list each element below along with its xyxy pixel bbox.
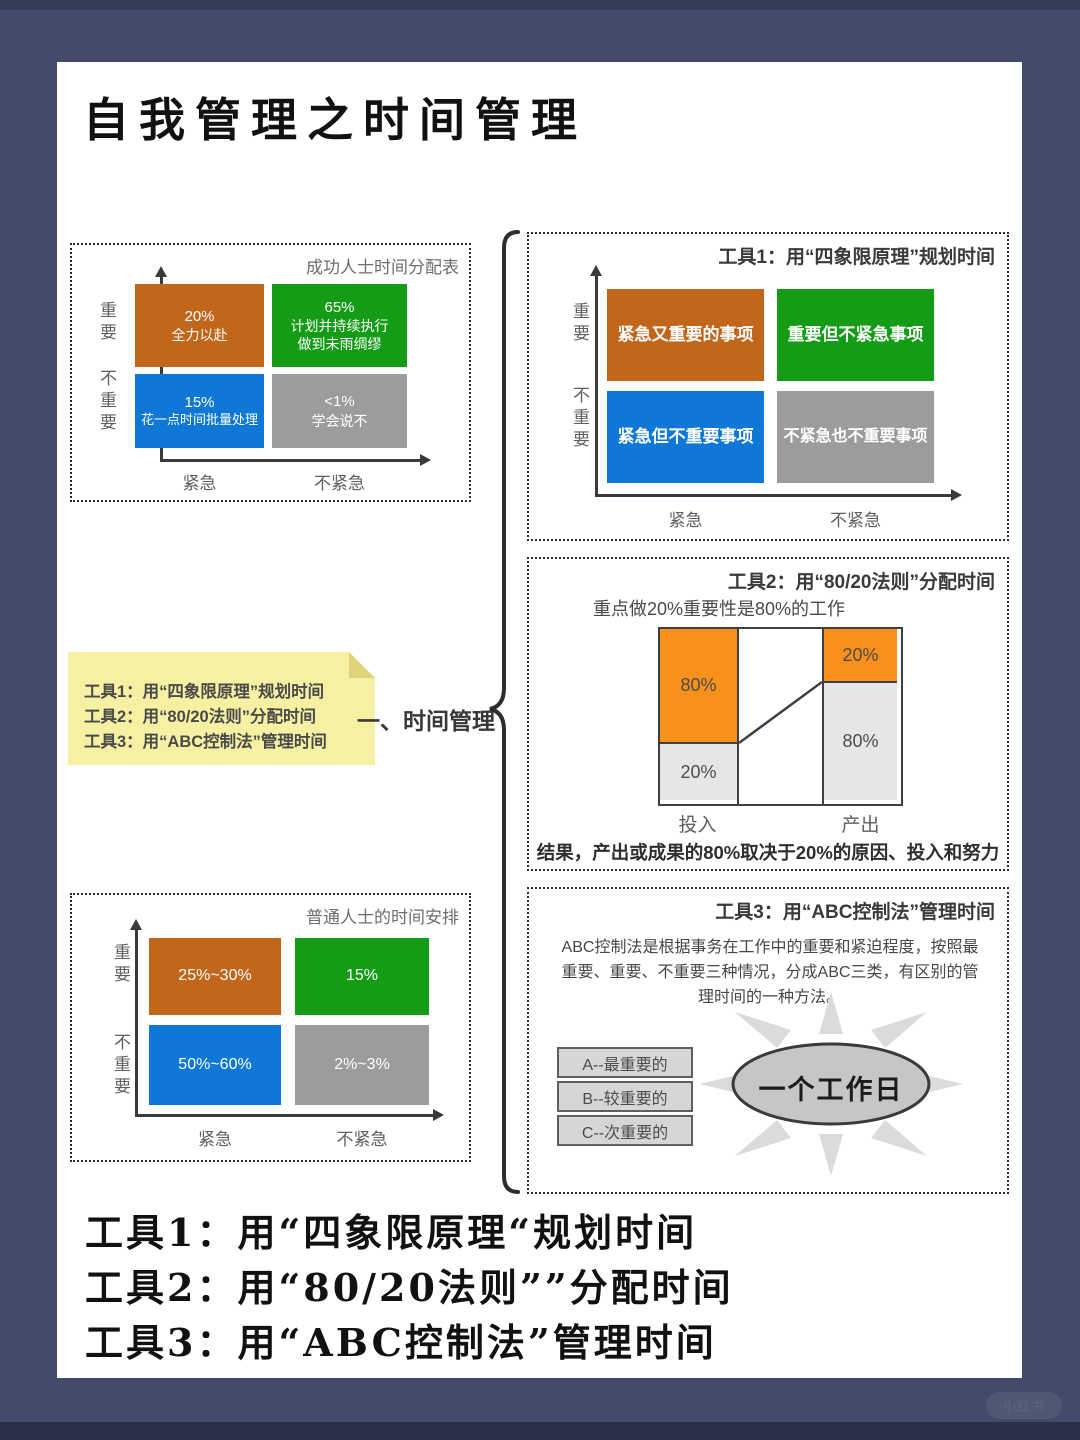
quad-not-urgent-not-important: <1% 学会说不 xyxy=(272,374,407,448)
quad-urgent-not-important: 15% 花一点时间批量处理 xyxy=(135,374,264,448)
input-top-segment: 80% xyxy=(660,629,737,744)
y-axis-arrow-icon xyxy=(130,919,142,930)
tool2-title: 工具2：用“80/20法则”分配时间 xyxy=(728,567,995,594)
category-a-label: A--最重要的 xyxy=(582,1051,667,1075)
x-label-urgent: 紧急 xyxy=(149,1125,281,1150)
output-bottom-segment: 80% xyxy=(824,683,897,800)
x-label-urgent: 紧急 xyxy=(607,506,764,531)
panel-success-title: 成功人士时间分配表 xyxy=(306,253,459,278)
x-axis-arrow-icon xyxy=(951,489,962,501)
category-b-box: B--较重要的 xyxy=(557,1081,693,1112)
x-label-not-urgent: 不紧急 xyxy=(272,469,407,494)
x-label-urgent: 紧急 xyxy=(135,469,264,494)
quad-important-not-urgent: 15% xyxy=(295,938,429,1015)
output-top-value: 20% xyxy=(842,645,878,666)
quad-label: 全力以赴 xyxy=(172,326,228,344)
input-bottom-segment: 20% xyxy=(660,744,737,800)
quad-important-not-urgent: 重要但不紧急事项 xyxy=(777,289,934,381)
quad-important-not-urgent: 65% 计划并持续执行 做到未雨绸缪 xyxy=(272,284,407,367)
note-line-1: 工具1：用“四象限原理”规划时间 xyxy=(84,680,327,705)
footer-summary: 工具1：用“四象限原理“规划时间 工具2：用“80/20法则””分配时间 工具3… xyxy=(85,1205,734,1370)
quad-urgent-not-important: 紧急但不重要事项 xyxy=(607,391,764,483)
note-line-2: 工具2：用“80/20法则”分配时间 xyxy=(84,705,327,730)
input-top-value: 80% xyxy=(680,675,716,696)
note-line-3: 工具3：用“ABC控制法”管理时间 xyxy=(84,730,327,755)
quad-value: 2%~3% xyxy=(334,1055,390,1076)
y-label-not-important: 不重要 xyxy=(567,386,592,452)
content-page: 自我管理之时间管理 成功人士时间分配表 重要 不重要 20% 全力以赴 65% … xyxy=(57,62,1022,1378)
y-label-not-important: 不重要 xyxy=(94,369,119,435)
tool2-subtitle: 重点做20%重要性是80%的工作 xyxy=(593,595,845,621)
y-axis-arrow-icon xyxy=(155,266,167,277)
center-label: 一、时间管理 xyxy=(357,702,487,736)
category-b-label: B--较重要的 xyxy=(582,1085,667,1109)
quad-value: 15% xyxy=(346,966,378,987)
x-axis-line xyxy=(160,459,422,462)
sticky-note: 工具1：用“四象限原理”规划时间 工具2：用“80/20法则”分配时间 工具3：… xyxy=(68,652,375,765)
transfer-area xyxy=(739,629,822,804)
quad-urgent-important: 20% 全力以赴 xyxy=(135,284,264,367)
transfer-diagonal-line xyxy=(739,629,822,800)
sticky-note-fold-icon xyxy=(349,652,375,678)
input-bar: 80% 20% xyxy=(660,629,739,804)
sticky-note-text: 工具1：用“四象限原理”规划时间 工具2：用“80/20法则”分配时间 工具3：… xyxy=(84,680,327,755)
photo-bottom-edge xyxy=(0,1422,1080,1440)
curly-brace-icon xyxy=(488,230,524,1194)
x-axis-line xyxy=(135,1114,435,1117)
tool2-chart: 80% 20% 20% 80% xyxy=(658,627,903,806)
x-axis-arrow-icon xyxy=(433,1109,444,1121)
category-c-label: C--次重要的 xyxy=(582,1119,668,1143)
panel-ordinary-title: 普通人士的时间安排 xyxy=(306,903,459,928)
quad-label: 紧急但不重要事项 xyxy=(618,426,754,448)
quad-label: 花一点时间批量处理 xyxy=(141,412,258,429)
panel-success-time-chart: 成功人士时间分配表 重要 不重要 20% 全力以赴 65% 计划并持续执行 做到… xyxy=(70,243,471,502)
y-axis-line xyxy=(135,928,138,1117)
y-axis-arrow-icon xyxy=(590,265,602,276)
quad-label: 计划并持续执行 xyxy=(291,317,389,335)
quad-label: 紧急又重要的事项 xyxy=(618,324,754,346)
photo-top-edge xyxy=(0,0,1080,10)
quad-urgent-important: 25%~30% xyxy=(149,938,281,1015)
y-label-not-important: 不重要 xyxy=(108,1033,133,1099)
panel-tool2: 工具2：用“80/20法则”分配时间 重点做20%重要性是80%的工作 80% … xyxy=(527,557,1009,871)
footer-line-3: 工具3：用“ABC控制法”管理时间 xyxy=(85,1315,734,1370)
x-axis-line xyxy=(595,494,953,497)
y-label-important: 重要 xyxy=(108,943,133,987)
panel-tool1: 工具1：用“四象限原理”规划时间 重要 不重要 紧急又重要的事项 重要但不紧急事… xyxy=(527,232,1009,541)
tool2-conclusion: 结果，产出或成果的80%取决于20%的原因、投入和努力 xyxy=(529,839,1007,865)
y-label-important: 重要 xyxy=(94,301,119,345)
watermark-badge: 小红书 xyxy=(986,1392,1062,1419)
output-bar: 20% 80% xyxy=(822,629,897,804)
y-label-important: 重要 xyxy=(567,302,592,346)
footer-line-1: 工具1：用“四象限原理“规划时间 xyxy=(85,1205,734,1260)
tool3-title: 工具3：用“ABC控制法”管理时间 xyxy=(715,897,995,924)
input-bottom-value: 20% xyxy=(680,762,716,783)
x-axis-arrow-icon xyxy=(420,454,431,466)
quad-value: 20% xyxy=(184,307,214,327)
quad-not-urgent-not-important: 2%~3% xyxy=(295,1025,429,1105)
x-label-not-urgent: 不紧急 xyxy=(777,506,934,531)
quad-value: 65% xyxy=(324,298,354,318)
quad-label: 重要但不紧急事项 xyxy=(788,324,924,346)
tool1-title: 工具1：用“四象限原理”规划时间 xyxy=(718,242,995,269)
output-axis-label: 产出 xyxy=(822,810,899,837)
quad-urgent-important: 紧急又重要的事项 xyxy=(607,289,764,381)
footer-line-2: 工具2：用“80/20法则””分配时间 xyxy=(85,1260,734,1315)
output-bottom-value: 80% xyxy=(842,731,878,752)
output-top-segment: 20% xyxy=(824,629,897,683)
x-label-not-urgent: 不紧急 xyxy=(295,1125,429,1150)
quad-value: 15% xyxy=(184,393,214,413)
quad-value: 50%~60% xyxy=(178,1055,251,1076)
quad-value: 25%~30% xyxy=(178,966,251,987)
page-title: 自我管理之时间管理 xyxy=(83,84,587,150)
quad-label: 学会说不 xyxy=(312,412,368,430)
category-a-box: A--最重要的 xyxy=(557,1047,693,1078)
panel-ordinary-time-chart: 普通人士的时间安排 重要 不重要 25%~30% 15% 50%~60% 2%~… xyxy=(70,893,471,1162)
y-axis-line xyxy=(595,274,598,497)
quad-label: 不紧急也不重要事项 xyxy=(783,427,927,448)
quad-label2: 做到未雨绸缪 xyxy=(298,335,382,353)
quad-urgent-not-important: 50%~60% xyxy=(149,1025,281,1105)
quad-value: <1% xyxy=(324,392,354,412)
quad-not-urgent-not-important: 不紧急也不重要事项 xyxy=(777,391,934,483)
workday-label: 一个工作日 xyxy=(679,1068,983,1107)
category-c-box: C--次重要的 xyxy=(557,1115,693,1146)
panel-tool3: 工具3：用“ABC控制法”管理时间 ABC控制法是根据事务在工作中的重要和紧迫程… xyxy=(527,887,1009,1194)
input-axis-label: 投入 xyxy=(658,810,737,837)
